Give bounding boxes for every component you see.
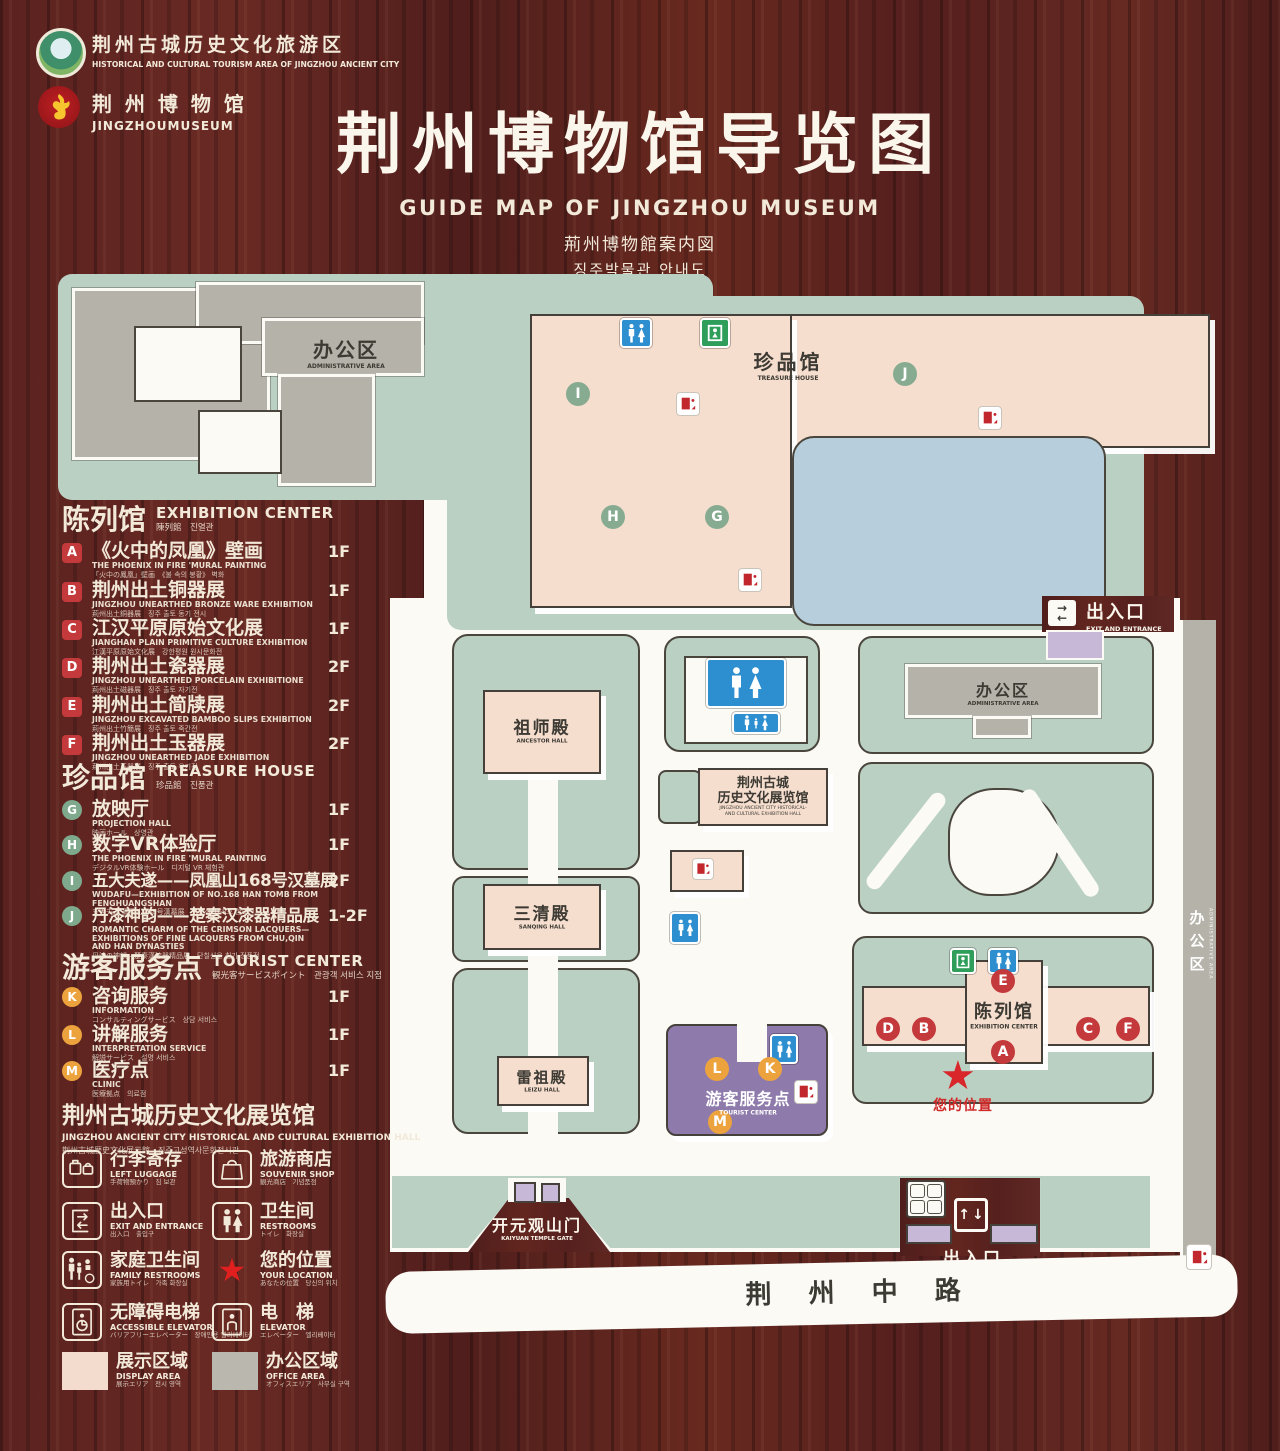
- elevator-icon: [692, 858, 714, 880]
- exit-updown-icon: ↑↓: [954, 1198, 988, 1232]
- legend-item: J1-2F丹漆神韵——楚秦汉漆器精品展ROMANTIC CHARM OF THE…: [62, 905, 382, 926]
- legend-item: B1F荆州出土铜器展JINGZHOU UNEARTHED BRONZE WARE…: [62, 580, 382, 602]
- section-title: 陈列馆: [62, 505, 146, 535]
- sanqing-hall-label: 三清殿: [514, 905, 571, 925]
- legend-item: M1F医疗点CLINIC医療拠点 의료점: [62, 1060, 382, 1081]
- building-label: 荆州古城: [737, 776, 789, 791]
- map-chip-D: D: [876, 1017, 900, 1041]
- family-restrooms-icon: [62, 1251, 102, 1289]
- treasure-house-label: 珍品馆: [754, 350, 823, 374]
- tourist-center-label-en: TOURIST CENTER: [705, 1110, 790, 1117]
- section-title: 游客服务点: [62, 953, 202, 983]
- gate-door: [514, 1182, 536, 1203]
- admin-strip-label: 办公区: [1187, 910, 1208, 979]
- elevator-icon: [212, 1303, 252, 1341]
- page-title: 荆州博物馆导览图: [240, 112, 1040, 178]
- souvenir-shop-icon: [212, 1150, 252, 1188]
- key-badge: E: [62, 697, 82, 717]
- museum-logo: [38, 86, 80, 128]
- elevator-icon: [978, 406, 1002, 430]
- key-badge: F: [62, 735, 82, 755]
- emergency-exit-icon: [700, 318, 730, 348]
- facility-restrooms: 卫生间RESTROOMSトイレ 화장실: [212, 1202, 362, 1240]
- gate-label: 开元观山门: [492, 1216, 582, 1235]
- hall-note-en: JINGZHOU ANCIENT CITY HISTORICAL AND CUL…: [62, 1133, 382, 1143]
- entrance-arrows-icon: →←: [1048, 600, 1076, 626]
- tourism-area-logo: [36, 28, 86, 78]
- map-chip-K: K: [758, 1057, 782, 1081]
- admin-nw-label-en: ADMINISTRATIVE AREA: [307, 363, 384, 370]
- s-entrance-block: [906, 1224, 952, 1244]
- tourist-center-label: 游客服务点: [705, 1090, 790, 1109]
- gate-label-en: KAIYUAN TEMPLE GATE: [492, 1236, 582, 1242]
- legend-section-treasure: 珍品馆 TREASURE HOUSE 珍品館 진품관 G1F放映厅PROJECT…: [62, 763, 382, 953]
- elevator-icon: [738, 568, 762, 592]
- map-chip-B: B: [912, 1017, 936, 1041]
- page-title-en: GUIDE MAP OF JINGZHOU MUSEUM: [240, 196, 1040, 220]
- ne-entrance-block: [1046, 630, 1104, 660]
- sanqing-hall-label-en: SANQING HALL: [514, 925, 571, 931]
- ancestor-hall-label-en: ANCESTOR HALL: [514, 739, 571, 745]
- hall-corridor-south: [528, 1098, 558, 1174]
- admin-e-label-en: ADMINISTRATIVE AREA: [967, 701, 1038, 707]
- building-label: 历史文化展览馆: [717, 791, 808, 806]
- legend-display-area: 展示区域DISPLAY AREA展示エリア 전시 영역: [62, 1352, 212, 1390]
- s-entrance-block: [990, 1224, 1038, 1244]
- key-badge: H: [62, 835, 82, 855]
- legend-item: E2F荆州出土简牍展JINGZHOU EXCAVATED BAMBOO SLIP…: [62, 695, 382, 717]
- left-luggage-icon: [62, 1150, 102, 1188]
- facility-left-luggage: 行李寄存LEFT LUGGAGE手荷物預かり 짐 보관: [62, 1150, 212, 1188]
- key-badge: A: [62, 543, 82, 563]
- ancient-city-exhibition-hall-building: 荆州古城 历史文化展览馆 JINGZHOU ANCIENT CITY HISTO…: [698, 768, 828, 826]
- ancestor-hall-label: 祖师殿: [514, 719, 571, 739]
- legend-section-tourist: 游客服务点 TOURIST CENTER 観光客サービスポイント 관광객 서비스…: [62, 953, 382, 1096]
- hall-note-title: 荆州古城历史文化展览馆: [62, 1096, 382, 1130]
- your-location-icon: ★: [212, 1251, 252, 1289]
- legend-item: L1F讲解服务INTERPRETATION SERVICE解説サービス 설명 서…: [62, 1024, 382, 1045]
- legend-item: K1F咨询服务INFORMATIONコンサルティングサービス 상담 서비스: [62, 986, 382, 1007]
- map-chip-F: F: [1116, 1017, 1140, 1041]
- facility-accessible-elevator: 无障碍电梯ACCESSIBLE ELEVATORバリアフリーエレベーター 장애인…: [62, 1303, 212, 1341]
- key-badge: J: [62, 906, 82, 926]
- courtyard: [134, 326, 242, 402]
- key-badge: C: [62, 620, 82, 640]
- facility-your-location: ★ 您的位置YOUR LOCATIONあなたの位置 당신의 위치: [212, 1251, 362, 1289]
- map-chip-H: H: [601, 505, 625, 529]
- map-chip-G: G: [705, 505, 729, 529]
- exit-entrance-icon: [62, 1202, 102, 1240]
- facility-family-restrooms: 家庭卫生间FAMILY RESTROOMS家族用トイレ 가족 화장실: [62, 1251, 212, 1289]
- museum-logo-subtitle: JINGZHOUMUSEUM: [92, 119, 247, 133]
- map-chip-L: L: [705, 1057, 729, 1081]
- map-chip-J: J: [893, 362, 917, 386]
- facility-exit-entrance: 出入口EXIT AND ENTRANCE出入口 출입구: [62, 1202, 212, 1240]
- court-small: [658, 770, 702, 824]
- legend-item: G1F放映厅PROJECTION HALL映画ホール 상영관: [62, 799, 382, 820]
- key-badge: I: [62, 871, 82, 891]
- phoenix-icon: [46, 92, 72, 122]
- legend-item: A1F《火中的凤凰》壁画THE PHOENIX IN FIRE 'MURAL P…: [62, 541, 382, 563]
- admin-building-nw: [278, 374, 375, 486]
- tourism-logo-subtitle: HISTORICAL AND CULTURAL TOURISM AREA OF …: [92, 60, 512, 69]
- key-badge: L: [62, 1025, 82, 1045]
- legend-office-area: 办公区域OFFICE AREAオフィスエリア 사무실 구역: [212, 1352, 362, 1390]
- ticket-booth-icon: [906, 1180, 946, 1218]
- elevator-icon: [1186, 1244, 1212, 1270]
- gate-door: [541, 1183, 560, 1203]
- office-area-swatch: [212, 1352, 258, 1390]
- exhibition-center-label-en: EXHIBITION CENTER: [970, 1024, 1038, 1031]
- road-label: 荆 州 中 路: [745, 1260, 975, 1327]
- admin-building-e: [973, 716, 1031, 738]
- map-chip-A: A: [991, 1040, 1015, 1064]
- tourism-logo-title: 荆州古城历史文化旅游区: [92, 30, 512, 57]
- map-chip-E: E: [991, 969, 1015, 993]
- restroom-icon: [620, 318, 652, 348]
- legend-item: F2F荆州出土玉器展JINGZHOU UNEARTHED JADE EXHIBI…: [62, 733, 382, 755]
- restroom-icon: [670, 912, 700, 944]
- building-label-en: AND CULTURAL EXHIBITION HALL: [725, 812, 801, 818]
- legend-section-exhibition: 陈列馆 EXHIBITION CENTER 陳列館 진열관 A1F《火中的凤凰》…: [62, 505, 382, 763]
- your-location-label: 您的位置: [933, 1098, 993, 1114]
- section-title: 珍品馆: [62, 763, 146, 793]
- key-badge: K: [62, 987, 82, 1007]
- key-badge: G: [62, 800, 82, 820]
- map-chip-I: I: [566, 382, 590, 406]
- admin-nw-label: 办公区: [313, 338, 379, 362]
- leizu-hall-label: 雷祖殿: [516, 1069, 567, 1087]
- family-restroom-icon: [732, 712, 780, 734]
- emergency-exit-icon: [950, 948, 976, 974]
- admin-e-label: 办公区: [976, 681, 1030, 700]
- guide-map-sign: 荆州古城历史文化旅游区 HISTORICAL AND CULTURAL TOUR…: [0, 0, 1280, 1451]
- courtyard: [198, 410, 282, 474]
- museum-logo-title: 荆 州 博 物 馆: [92, 88, 247, 117]
- admin-strip: 办公区 ADMINISTRATIVE AREA: [1180, 620, 1216, 1268]
- elevator-icon: [676, 392, 700, 416]
- tourist-center-notch: [737, 1024, 767, 1062]
- elevator-icon: [794, 1080, 818, 1104]
- restrooms-icon: [212, 1202, 252, 1240]
- treasure-house-label-en: TREASURE HOUSE: [754, 375, 823, 382]
- display-area-swatch: [62, 1352, 108, 1390]
- exhibition-center-label: 陈列馆: [974, 1002, 1034, 1023]
- admin-strip-label-en: ADMINISTRATIVE AREA: [1208, 908, 1213, 979]
- legend-item: H1F数字VR体验厅THE PHOENIX IN FIRE 'MURAL PAI…: [62, 834, 382, 855]
- key-badge: B: [62, 582, 82, 602]
- key-badge: M: [62, 1061, 82, 1081]
- leizu-hall-label-en: LEIZU HALL: [516, 1088, 567, 1094]
- accessible-elevator-icon: [62, 1303, 102, 1341]
- road: 荆 州 中 路: [385, 1254, 1238, 1334]
- legend-item: I2F五大夫遂——凤凰山168号汉墓展WUDAFU—EXHIBITION OF …: [62, 870, 382, 891]
- your-location-icon: ★: [940, 1056, 976, 1096]
- legend-item: C1F江汉平原原始文化展JIANGHAN PLAIN PRIMITIVE CUL…: [62, 618, 382, 640]
- legend-item: D2F荆州出土瓷器展JINGZHOU UNEARTHED PORCELAIN E…: [62, 656, 382, 678]
- facility-elevator: 电 梯ELEVATORエレベーター 엘리베이터: [212, 1303, 362, 1341]
- restroom-icon: [706, 658, 786, 708]
- key-badge: D: [62, 658, 82, 678]
- legend-hall-note: 荆州古城历史文化展览馆 JINGZHOU ANCIENT CITY HISTOR…: [62, 1096, 382, 1148]
- map-chip-C: C: [1076, 1017, 1100, 1041]
- exit-ne-label: 出入口: [1086, 598, 1162, 624]
- page-title-ja: 荊州博物館案内図: [240, 230, 1040, 255]
- facility-souvenir-shop: 旅游商店SOUVENIR SHOP観光商店 기념품점: [212, 1150, 362, 1188]
